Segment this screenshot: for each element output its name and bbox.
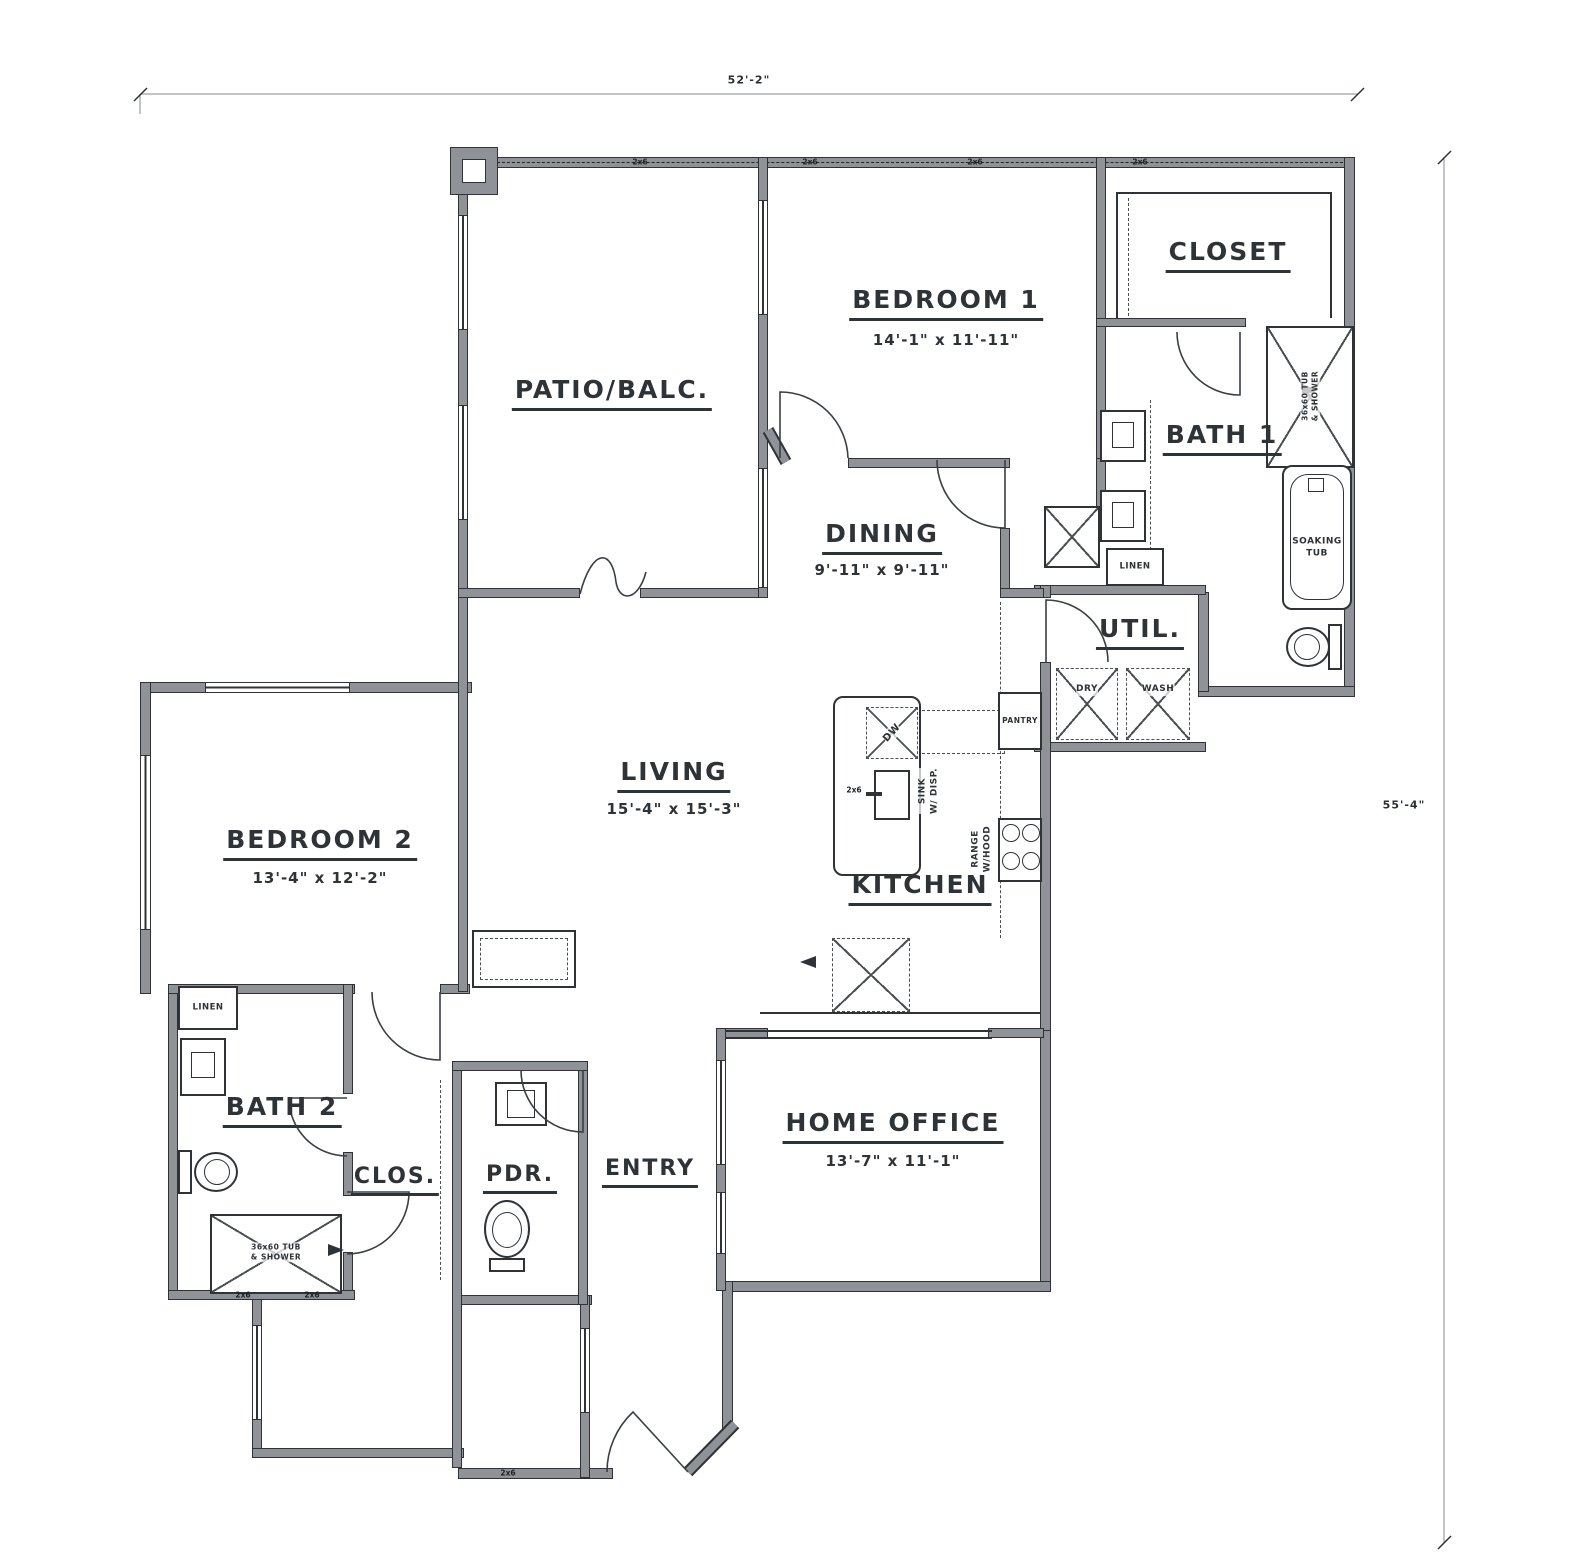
label-linen-util: LINEN xyxy=(1119,561,1150,572)
door-bedroom1 xyxy=(780,392,848,458)
range-burner-1 xyxy=(1002,824,1020,842)
wall-bath2-left xyxy=(168,984,178,1300)
window-office-left-1 xyxy=(716,1060,726,1165)
label-washer: WASH xyxy=(1142,684,1175,696)
dining-hall-cabinet xyxy=(1044,506,1100,568)
patio-step-curve xyxy=(580,558,646,596)
dimension-overall-depth: 55'-4" xyxy=(1383,799,1426,812)
washer xyxy=(1126,668,1190,740)
kitchen-cabinet-xbox xyxy=(832,938,910,1012)
label-stud-bath2-1: 2x6 xyxy=(235,1291,250,1300)
bath1-sink-1-basin xyxy=(1112,422,1134,448)
floor-plan: PATIO/BALC. BEDROOM 1 14'-1" x 11'-11" C… xyxy=(0,0,1585,1554)
wall-closet-bottom xyxy=(252,1448,464,1458)
wall-office-right xyxy=(1040,1030,1051,1292)
room-dims-office: 13'-7" x 11'-1" xyxy=(825,1152,960,1170)
wall-living-left xyxy=(458,592,468,992)
wall-bath1-bottom xyxy=(1198,686,1355,697)
patio-door-opening xyxy=(758,468,768,588)
window-entry-left xyxy=(580,1328,590,1413)
kitchen-counter-dashline xyxy=(1000,602,1001,938)
room-label-pdr: PDR. xyxy=(483,1162,557,1194)
window-office-left-2 xyxy=(716,1192,726,1254)
wall-office-bottom xyxy=(722,1281,1051,1292)
range-burner-4 xyxy=(1022,852,1040,870)
wall-office-top-stub-right xyxy=(988,1028,1044,1038)
wall-util-bottom xyxy=(1034,742,1206,752)
room-label-closet1: CLOSET xyxy=(1166,237,1291,273)
range-burner-2 xyxy=(1022,824,1040,842)
bath1-counter-dashline xyxy=(1150,400,1151,560)
label-stud-top-4: 2x6 xyxy=(1132,158,1147,167)
patio-post-inner xyxy=(462,159,486,183)
window-patio-left-2 xyxy=(458,405,468,520)
bath2-toilet-seat xyxy=(204,1159,230,1185)
label-sink: SINK W/ DISP. xyxy=(917,768,940,814)
label-dryer: DRY xyxy=(1076,684,1098,696)
kitchen-floor-line xyxy=(760,1012,1040,1014)
window-bedroom2-left xyxy=(140,755,151,930)
dryer xyxy=(1056,668,1118,740)
wall-bedroom1-bottom xyxy=(848,458,1010,468)
room-label-dining: DINING xyxy=(822,519,942,555)
wall-hall-closet-right xyxy=(452,1068,462,1468)
room-label-bedroom1: BEDROOM 1 xyxy=(849,285,1043,321)
bath1-toilet-seat xyxy=(1294,634,1320,660)
room-dims-living: 15'-4" x 15'-3" xyxy=(606,800,741,818)
door-bath-hall xyxy=(937,460,1005,528)
window-patio-left-1 xyxy=(458,215,468,330)
wall-diagonal-entry-fill xyxy=(688,1424,735,1472)
room-label-office: HOME OFFICE xyxy=(783,1108,1004,1144)
label-stud-top-1: 2x6 xyxy=(632,158,647,167)
label-stud-top-3: 2x6 xyxy=(967,158,982,167)
counter-extension-dashline xyxy=(917,710,1005,754)
wall-diagonal-bedroom1 xyxy=(768,430,786,462)
office-opening-header-2 xyxy=(726,1037,992,1039)
window-closet-left xyxy=(252,1325,262,1420)
wall-pdr-top xyxy=(452,1061,588,1071)
room-dims-bedroom1: 14'-1" x 11'-11" xyxy=(873,331,1019,349)
label-range: RANGE W/HOOD xyxy=(970,826,993,873)
door-bedroom2 xyxy=(372,992,440,1060)
dim-tick-3 xyxy=(1438,151,1451,164)
bath2-toilet-tank xyxy=(178,1150,192,1194)
wall-patio-bottom-a xyxy=(458,588,580,598)
label-pantry: PANTRY xyxy=(1002,716,1038,726)
label-soaking-tub: SOAKING TUB xyxy=(1292,536,1342,559)
wall-util-right xyxy=(1198,592,1209,692)
room-label-bath2: BATH 2 xyxy=(223,1092,342,1128)
office-opening-header-1 xyxy=(726,1030,992,1032)
wall-pdr-bottom xyxy=(452,1295,592,1305)
wall-patio-bottom-b xyxy=(640,588,768,598)
wall-pdr-right xyxy=(578,1068,588,1305)
room-label-entry: ENTRY xyxy=(602,1156,698,1188)
pdr-sink-basin xyxy=(507,1090,535,1118)
wall-diagonal-bedroom1-fill xyxy=(768,430,786,462)
kitchen-arrow-icon xyxy=(800,956,816,968)
window-patio-right xyxy=(758,200,768,315)
dim-tick-1 xyxy=(134,88,147,101)
island-sink-faucet xyxy=(866,792,882,796)
bath1-sink-2-basin xyxy=(1112,502,1134,528)
room-label-patio: PATIO/BALC. xyxy=(512,375,712,411)
label-stud-bath2-2: 2x6 xyxy=(304,1291,319,1300)
pdr-toilet-seat xyxy=(492,1212,522,1248)
room-dims-dining: 9'-11" x 9'-11" xyxy=(814,561,949,579)
room-label-clos: CLOS. xyxy=(351,1164,439,1196)
label-tub-shower-bath2: 36x60 TUB & SHOWER xyxy=(251,1242,301,1262)
label-stud-island: 2x6 xyxy=(846,786,861,795)
wall-diagonal-entry xyxy=(688,1424,735,1472)
dim-tick-4 xyxy=(1438,1536,1451,1549)
label-tub-shower-bath1: 36x60 TUB & SHOWER xyxy=(1300,371,1320,421)
room-label-living: LIVING xyxy=(617,757,730,793)
window-bedroom2-top xyxy=(205,682,350,693)
dim-tick-2 xyxy=(1351,88,1364,101)
room-label-util: UTIL. xyxy=(1096,614,1184,650)
bath1-toilet-tank xyxy=(1328,624,1342,670)
room-label-kitchen: KITCHEN xyxy=(849,870,992,906)
door-closet1 xyxy=(1177,332,1240,395)
label-stud-top-2: 2x6 xyxy=(802,158,817,167)
wall-entry-right xyxy=(722,1281,733,1429)
closet-rod-dashline xyxy=(440,1080,441,1280)
range-burner-3 xyxy=(1002,852,1020,870)
bedroom2-builtin-dash xyxy=(480,938,568,980)
label-stud-entry: 2x6 xyxy=(500,1469,515,1478)
door-entry xyxy=(607,1412,688,1472)
room-label-bedroom2: BEDROOM 2 xyxy=(223,825,417,861)
pdr-toilet-tank xyxy=(489,1258,525,1272)
closet1-rod-dashline xyxy=(1128,198,1129,316)
wall-bath2-right-a xyxy=(343,984,353,1094)
wall-top-stud-dashline xyxy=(482,162,1348,163)
wall-dining-util-stub xyxy=(1000,588,1044,598)
wall-util-top xyxy=(1034,585,1206,595)
bath2-sink-basin xyxy=(191,1052,215,1078)
room-label-bath1: BATH 1 xyxy=(1163,420,1282,456)
dimension-overall-width: 52'-2" xyxy=(728,74,771,87)
bath1-tub-faucet xyxy=(1308,478,1324,492)
label-linen-bath2: LINEN xyxy=(192,1002,223,1013)
wall-closet1-bottom xyxy=(1096,318,1246,327)
door-clos xyxy=(347,1192,409,1254)
room-dims-bedroom2: 13'-4" x 12'-2" xyxy=(252,869,387,887)
